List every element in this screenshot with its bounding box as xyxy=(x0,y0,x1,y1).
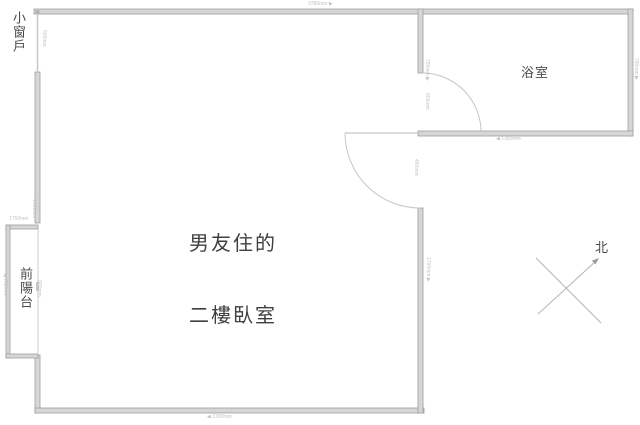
dim-divider-upper: 750mm ▶ xyxy=(424,59,430,81)
label-bedroom-line2: 二樓臥室 xyxy=(189,303,277,327)
label-small-window: 小窗戶 xyxy=(8,11,27,53)
dim-top-wall: 3780mm ▶ xyxy=(308,1,333,7)
dim-bathroom-bottom: ◀ 1380mm xyxy=(496,136,521,142)
wall-balcony-bottom xyxy=(6,354,38,358)
compass-line-nw-se xyxy=(536,258,601,323)
wall-balcony-top xyxy=(6,225,38,229)
label-north: 北 xyxy=(595,237,608,256)
label-bedroom-line1: 男友住的 xyxy=(189,231,277,255)
window-tick xyxy=(36,10,40,14)
floor-plan: 小窗戶 浴室 男友住的 二樓臥室 前陽台 北 3780mm ▶ ◀ 2300mm… xyxy=(0,0,640,425)
dim-balcony-top: 1750mm xyxy=(9,216,28,222)
dim-bottom-wall: ◀ 2300mm xyxy=(207,414,232,420)
wall-divider-bathroom xyxy=(418,9,423,73)
label-bathroom: 浴室 xyxy=(521,62,549,81)
wall-left-lower xyxy=(35,355,40,413)
dim-balcony-inner: 900mm xyxy=(36,280,42,297)
dim-window-height: 500mm xyxy=(41,30,47,47)
wall-bottom xyxy=(35,408,424,413)
compass xyxy=(536,258,601,323)
dim-door-opening: 450mm xyxy=(413,159,419,176)
wall-right-bedroom xyxy=(418,208,423,413)
dim-bathroom-right: 780mm ▶ xyxy=(633,58,639,80)
label-front-balcony: 前陽台 xyxy=(15,267,34,309)
bathroom-door-arc xyxy=(422,73,481,132)
wall-top xyxy=(34,9,633,14)
wall-bathroom-bottom xyxy=(418,131,633,136)
dim-balcony-left: ◀ 780mm xyxy=(2,273,8,295)
label-bedroom: 男友住的 二樓臥室 xyxy=(189,183,277,375)
dim-divider-opening: 600mm xyxy=(424,93,430,110)
bedroom-door-arc xyxy=(345,133,420,208)
dim-left-wall-mid: 1500mm xyxy=(31,199,37,218)
dim-bedroom-right: 1700mm ▶ xyxy=(425,257,431,282)
